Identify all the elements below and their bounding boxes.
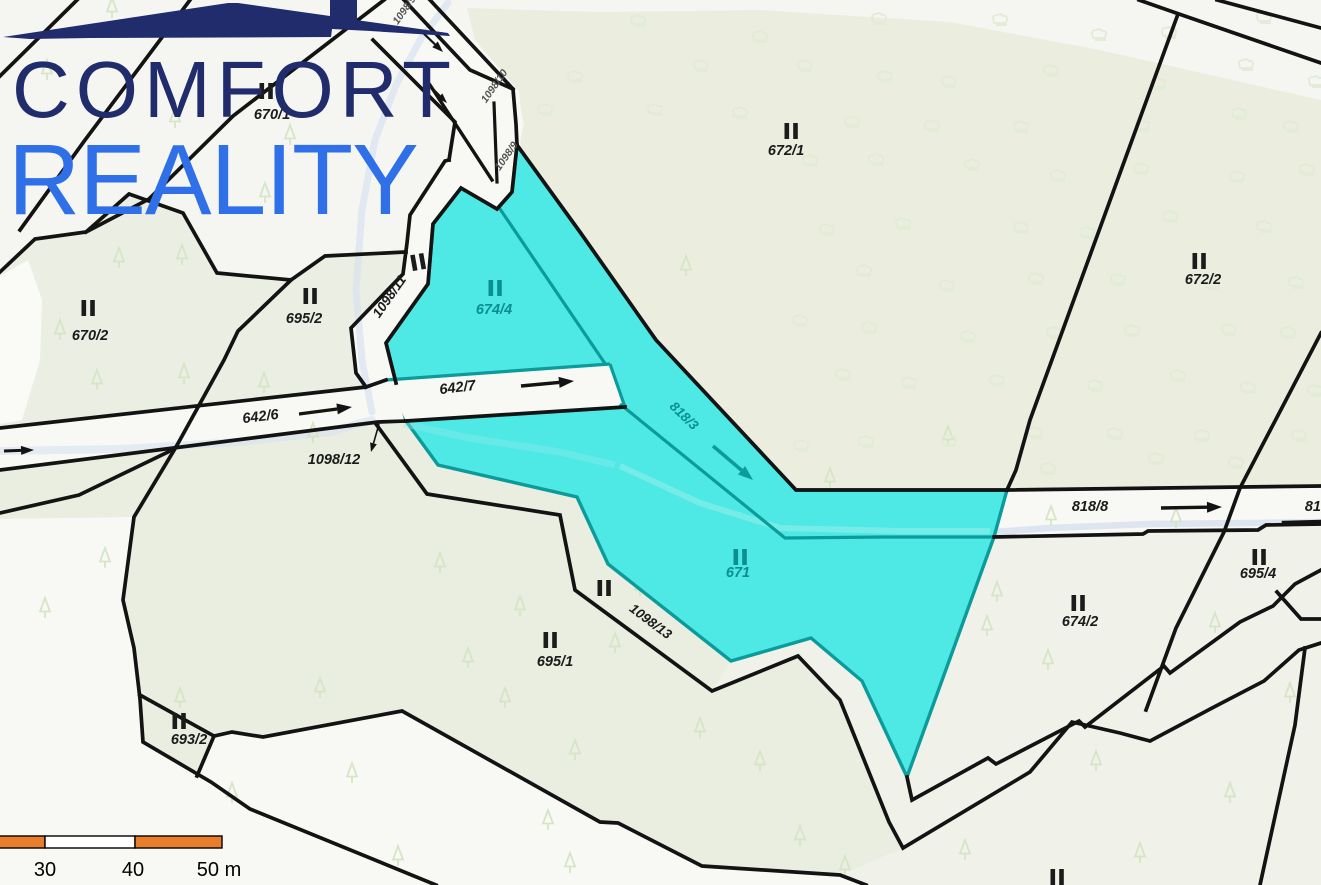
svg-text:695/2: 695/2: [286, 311, 322, 327]
svg-text:671: 671: [726, 565, 750, 581]
svg-text:695/4: 695/4: [1240, 566, 1276, 582]
svg-text:693/2: 693/2: [171, 732, 207, 748]
svg-text:672/1: 672/1: [768, 143, 804, 159]
svg-text:695/1: 695/1: [537, 654, 573, 670]
svg-text:COMFORT: COMFORT: [12, 45, 457, 134]
svg-text:REALITY: REALITY: [8, 124, 418, 236]
svg-text:670/2: 670/2: [72, 328, 108, 344]
svg-text:1098/12: 1098/12: [308, 452, 360, 468]
svg-text:30: 30: [34, 859, 56, 881]
svg-text:674/4: 674/4: [476, 302, 512, 318]
svg-text:672/2: 672/2: [1185, 272, 1221, 288]
svg-text:50 m: 50 m: [197, 859, 241, 881]
svg-text:818/8: 818/8: [1305, 499, 1321, 515]
svg-text:40: 40: [122, 859, 144, 881]
svg-text:818/8: 818/8: [1072, 499, 1109, 515]
svg-text:674/2: 674/2: [1062, 614, 1098, 630]
